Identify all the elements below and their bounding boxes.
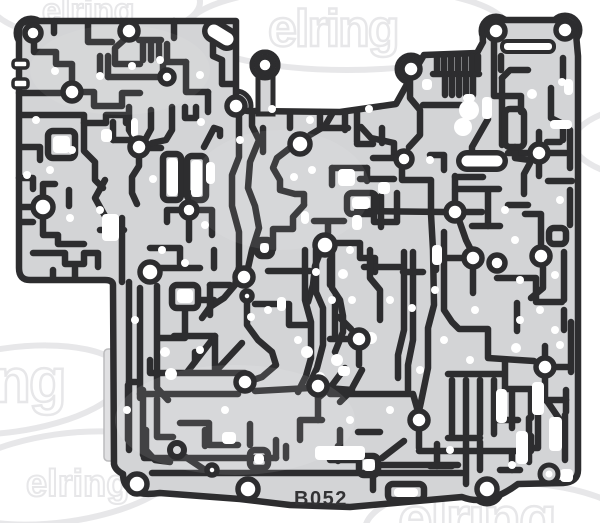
svg-text:elring: elring — [268, 0, 398, 58]
svg-text:B052: B052 — [294, 488, 348, 510]
svg-text:elring: elring — [0, 347, 65, 416]
